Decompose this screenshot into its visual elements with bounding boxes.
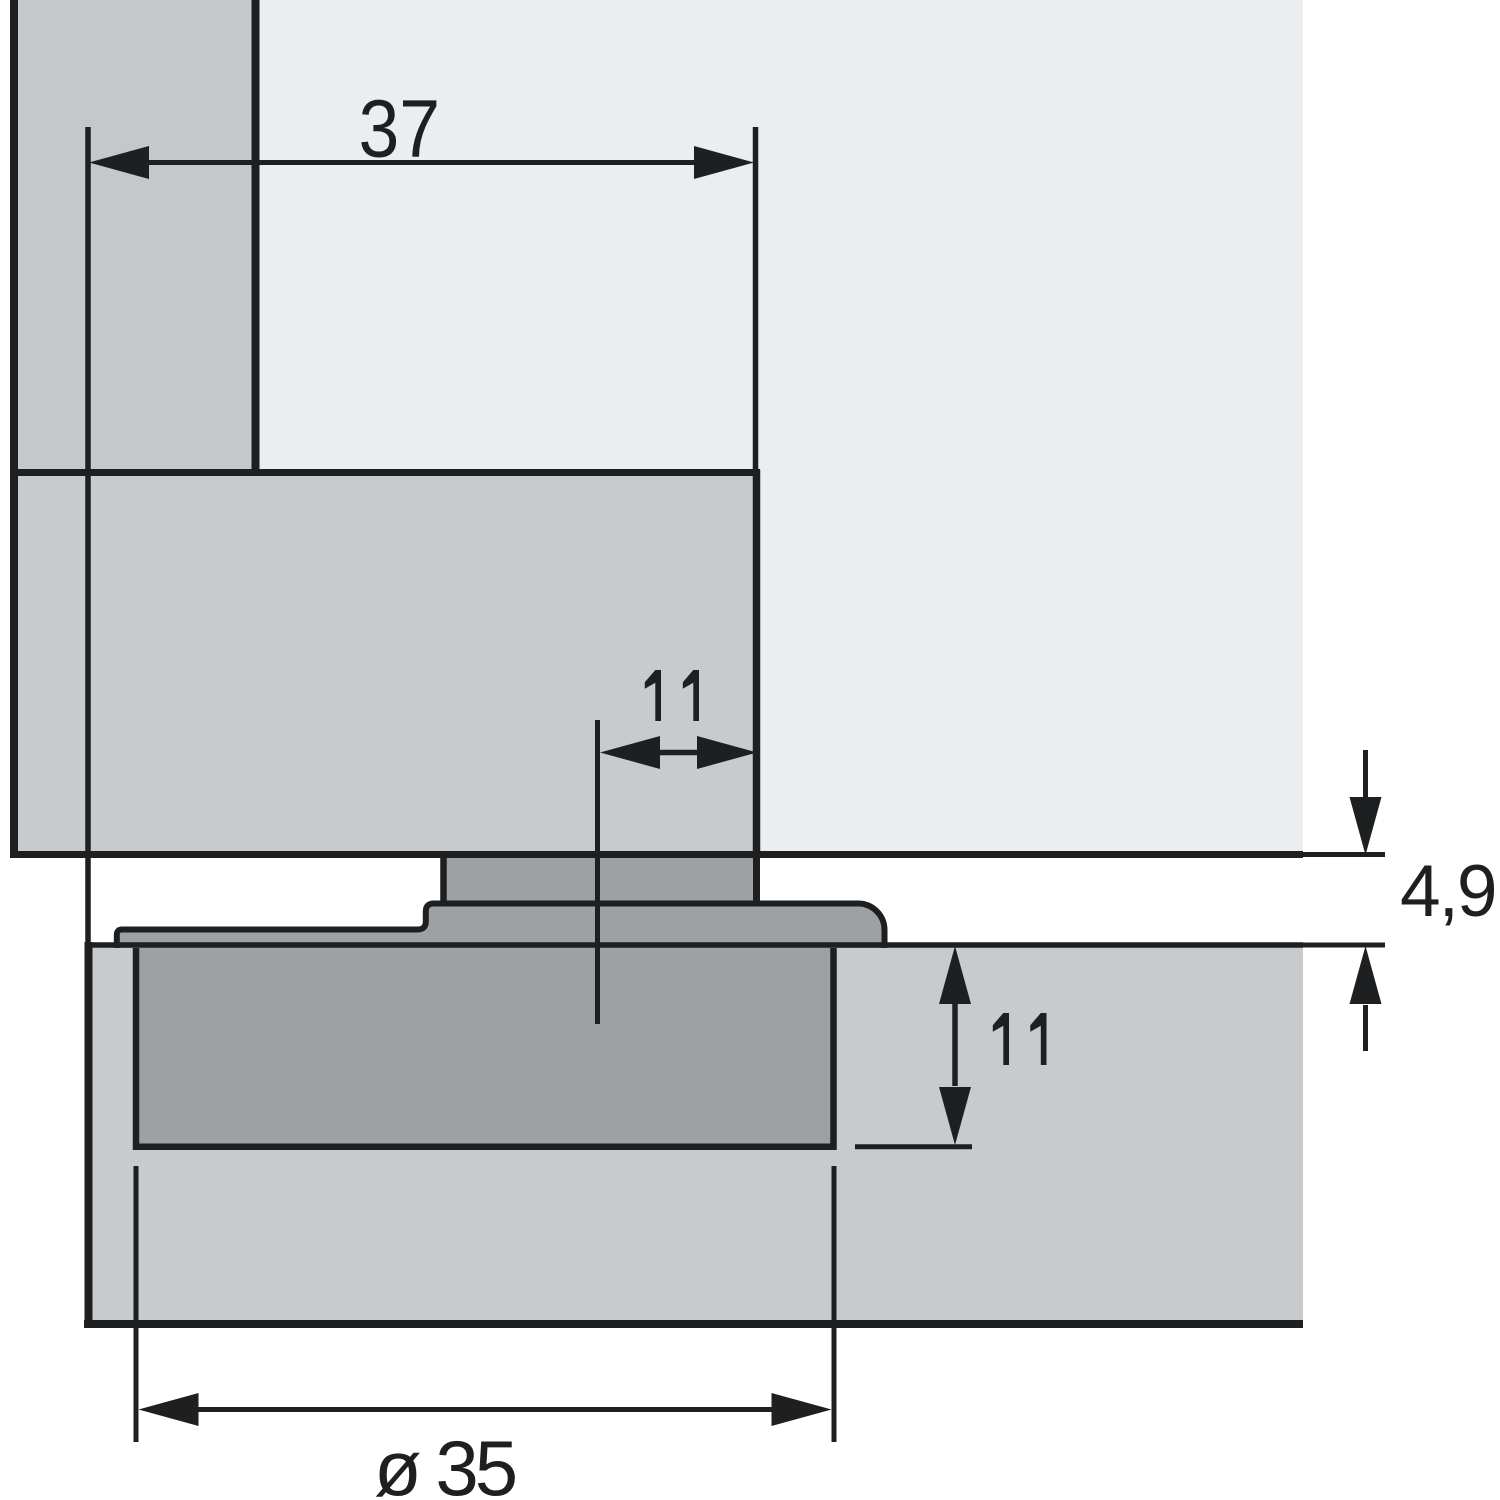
svg-text:ø 35: ø 35 — [374, 1424, 516, 1500]
svg-text:37: 37 — [359, 84, 441, 174]
svg-text:4,9: 4,9 — [1400, 851, 1495, 932]
